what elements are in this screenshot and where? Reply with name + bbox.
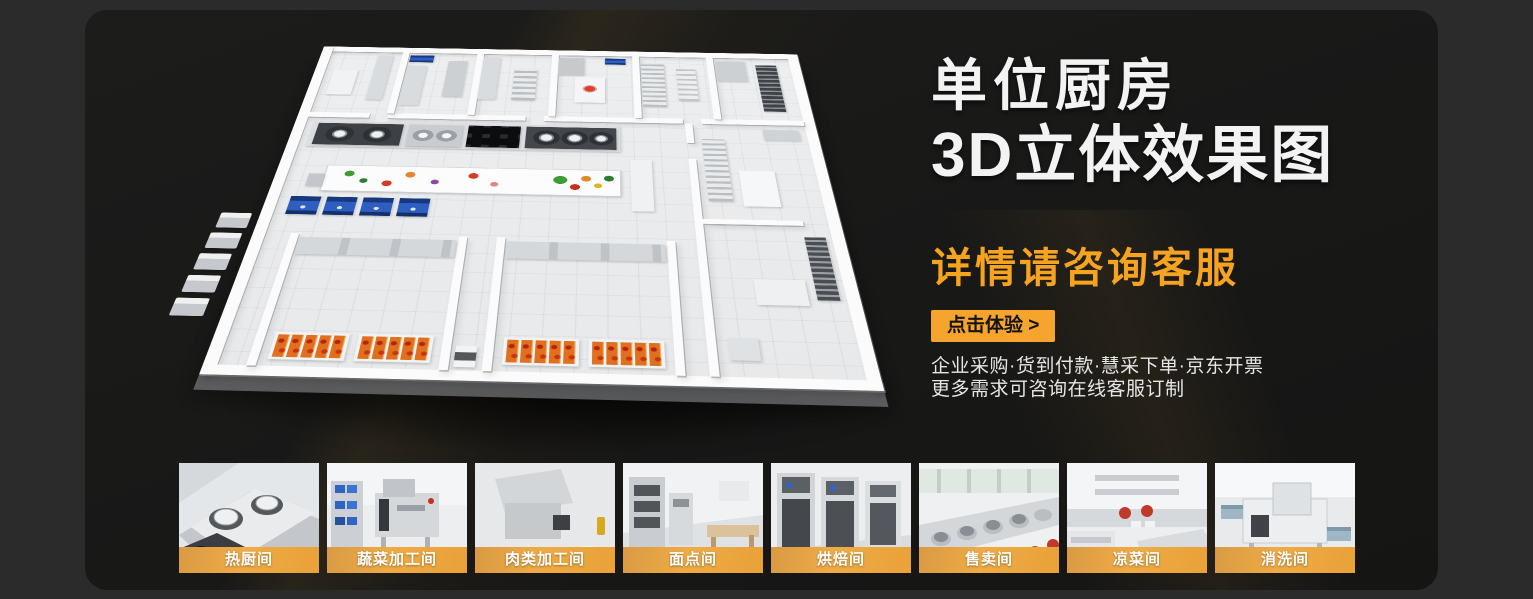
subtitle: 详情请咨询客服 — [931, 234, 1438, 294]
tall-cabinet — [739, 171, 782, 207]
gallery-label: 售卖间 — [919, 547, 1059, 573]
gallery-item-pastry-room[interactable]: 面点间 — [623, 463, 763, 573]
cta-button[interactable]: 点击体验 > — [931, 310, 1055, 342]
work-table — [753, 279, 810, 306]
wall-corridor-seg — [544, 116, 683, 123]
benefits-line-1: 企业采购·货到付款·慧采下单·京东开票 — [931, 355, 1438, 378]
cabinet — [558, 58, 585, 76]
food-display-case — [588, 339, 665, 368]
gallery-item-cold-dish-room[interactable]: 凉菜间 — [1067, 463, 1207, 573]
dark-shelf-unit — [755, 65, 786, 112]
oven-stack — [511, 69, 537, 101]
trolley — [193, 253, 232, 270]
blue-machine — [409, 55, 434, 62]
floor-drain — [727, 338, 761, 361]
wall-right-divider — [703, 219, 804, 226]
gallery-item-washing-room[interactable]: 消洗间 — [1215, 463, 1355, 573]
benefits-line-2: 更多需求可咨询在线客服订制 — [931, 378, 1438, 401]
gallery-item-meat-processing[interactable]: 肉类加工间 — [475, 463, 615, 573]
gallery-label: 肉类加工间 — [475, 547, 615, 573]
counter — [365, 56, 394, 100]
meat-table — [574, 77, 605, 103]
serving-counter — [295, 237, 457, 257]
gallery-item-hot-kitchen[interactable]: 热厨间 — [179, 463, 319, 573]
title-line-2: 3D立体效果图 — [931, 123, 1438, 188]
floor-plan-illustration — [223, 22, 913, 462]
gallery-label: 面点间 — [623, 547, 763, 573]
corridor-fixture — [453, 346, 477, 368]
prep-table — [326, 70, 359, 95]
blue-machine — [605, 59, 626, 65]
gallery-label: 热厨间 — [179, 547, 319, 573]
prep-island — [319, 165, 621, 197]
wok-range — [312, 123, 404, 146]
gallery-label: 消洗间 — [1215, 547, 1355, 573]
steamer-range — [405, 124, 464, 146]
counter — [442, 61, 468, 97]
shelf-rack — [676, 69, 699, 101]
wall-right-wing — [685, 124, 695, 143]
food-display-case — [353, 334, 434, 363]
trolley — [204, 232, 242, 248]
blue-machine — [359, 197, 394, 216]
wall-partition — [548, 55, 559, 116]
wok-range — [525, 127, 617, 150]
floor-plan-floor — [199, 46, 884, 391]
trolley — [169, 298, 210, 317]
food-display-case — [502, 337, 580, 366]
wall-corridor-seg — [701, 119, 804, 126]
room-gallery: 热厨间 蔬菜加工间 — [179, 463, 1355, 573]
title-line-1: 单位厨房 — [931, 56, 1438, 115]
food-display-case — [267, 332, 350, 361]
shelf-rack — [702, 139, 734, 201]
gallery-item-baking-room[interactable]: 烘焙间 — [771, 463, 911, 573]
gallery-item-vegetable-processing[interactable]: 蔬菜加工间 — [327, 463, 467, 573]
serving-counter — [505, 241, 666, 262]
blue-machine — [285, 196, 322, 215]
shelf-rack — [641, 63, 667, 106]
wall-serving-room — [667, 241, 686, 376]
blue-machine — [322, 197, 358, 216]
gallery-label: 蔬菜加工间 — [327, 547, 467, 573]
gallery-label: 凉菜间 — [1067, 547, 1207, 573]
blue-machine — [396, 198, 430, 217]
counter — [762, 130, 800, 141]
gallery-label: 烘焙间 — [771, 547, 911, 573]
trolley — [215, 213, 252, 229]
wall-corridor-seg — [387, 113, 526, 120]
gallery-item-sales-room[interactable]: 售卖间 — [919, 463, 1059, 573]
fridge-cabinet — [715, 61, 748, 81]
banner-card: 单位厨房 3D立体效果图 详情请咨询客服 点击体验 > 企业采购·货到付款·慧采… — [85, 10, 1438, 590]
wall-corridor-seg — [308, 112, 370, 118]
hero-text-block: 单位厨房 3D立体效果图 详情请咨询客服 点击体验 > 企业采购·货到付款·慧采… — [931, 56, 1438, 401]
service-column — [630, 160, 654, 212]
trolley — [181, 275, 221, 293]
six-burner-range — [465, 126, 521, 148]
